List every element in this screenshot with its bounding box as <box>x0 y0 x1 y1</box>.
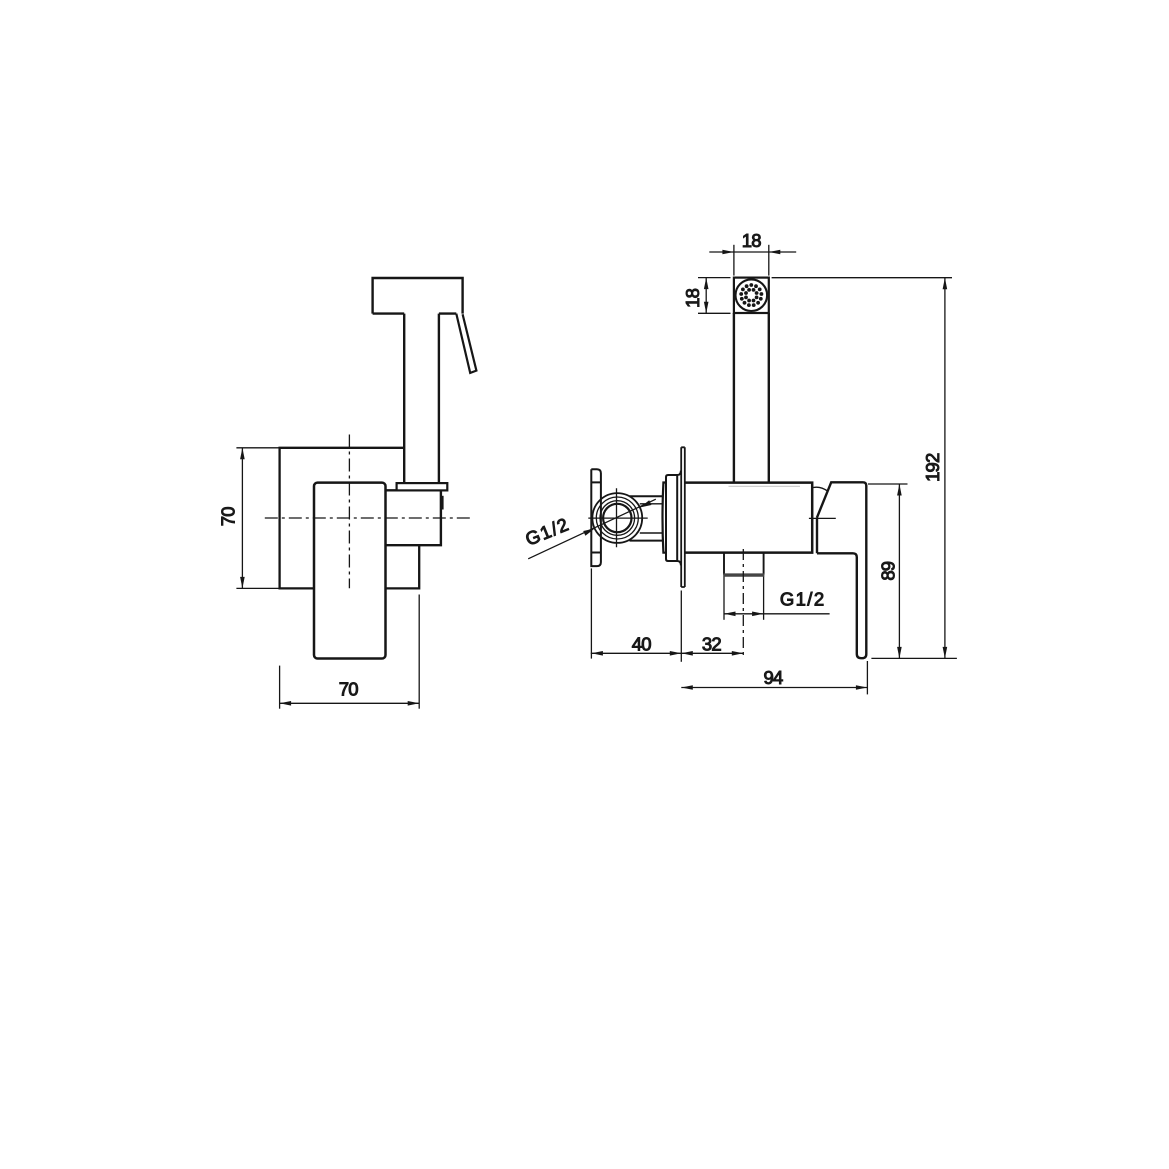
svg-text:70: 70 <box>218 507 239 526</box>
svg-text:40: 40 <box>632 634 651 655</box>
svg-text:G1/2: G1/2 <box>780 588 826 609</box>
svg-text:32: 32 <box>702 634 721 655</box>
svg-text:192: 192 <box>922 453 943 482</box>
svg-text:70: 70 <box>339 679 358 700</box>
svg-text:18: 18 <box>742 230 761 251</box>
svg-text:89: 89 <box>877 561 898 580</box>
svg-text:18: 18 <box>682 288 703 307</box>
svg-text:94: 94 <box>764 667 783 688</box>
